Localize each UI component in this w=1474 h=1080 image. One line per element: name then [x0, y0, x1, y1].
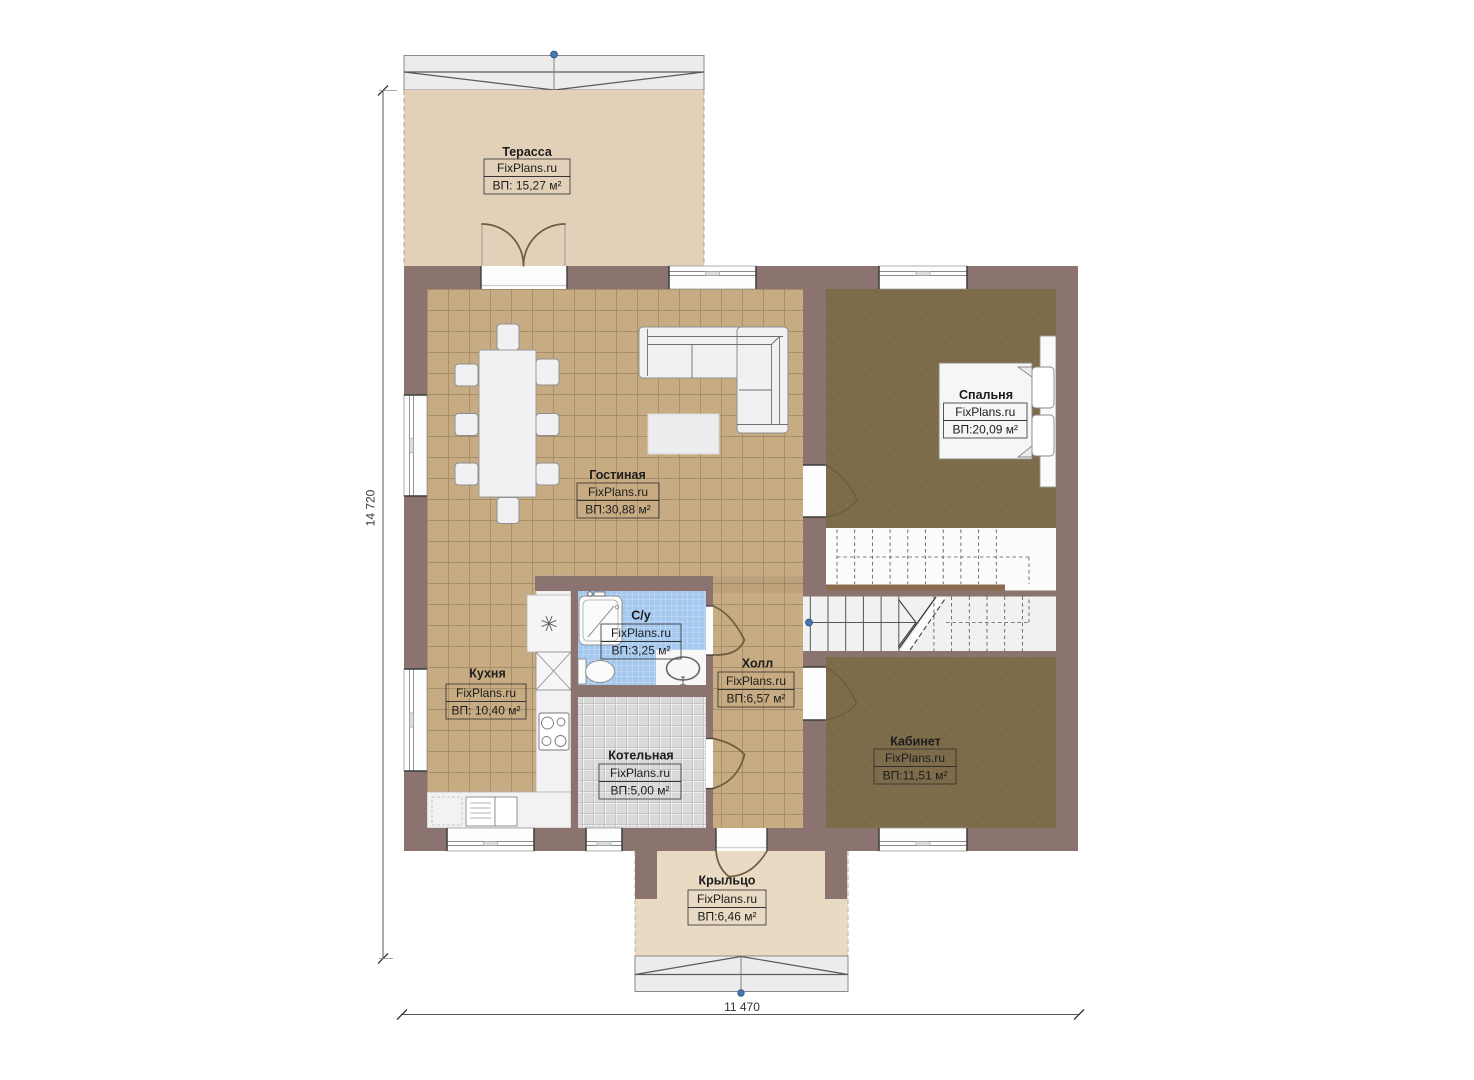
svg-text:Гостиная: Гостиная: [589, 468, 646, 482]
svg-text:ВП: 15,27 м²: ВП: 15,27 м²: [493, 179, 562, 193]
svg-text:FixPlans.ru: FixPlans.ru: [726, 674, 786, 688]
svg-text:11 470: 11 470: [724, 1000, 760, 1014]
svg-text:ВП:5,00 м²: ВП:5,00 м²: [611, 784, 670, 798]
svg-text:FixPlans.ru: FixPlans.ru: [610, 766, 670, 780]
svg-text:FixPlans.ru: FixPlans.ru: [456, 686, 516, 700]
svg-text:ВП:6,57 м²: ВП:6,57 м²: [727, 692, 786, 706]
svg-text:14 720: 14 720: [364, 489, 378, 526]
svg-text:Котельная: Котельная: [608, 749, 673, 763]
svg-text:ВП: 10,40 м²: ВП: 10,40 м²: [452, 704, 521, 718]
svg-text:FixPlans.ru: FixPlans.ru: [697, 892, 757, 906]
svg-text:ВП:20,09 м²: ВП:20,09 м²: [952, 423, 1018, 437]
svg-text:ВП:6,46 м²: ВП:6,46 м²: [698, 910, 757, 924]
svg-text:FixPlans.ru: FixPlans.ru: [885, 751, 945, 765]
svg-text:С/у: С/у: [631, 609, 651, 623]
svg-text:FixPlans.ru: FixPlans.ru: [955, 405, 1015, 419]
svg-text:ВП:3,25 м²: ВП:3,25 м²: [612, 644, 671, 658]
svg-text:ВП:30,88 м²: ВП:30,88 м²: [585, 503, 651, 517]
svg-text:Кухня: Кухня: [469, 667, 506, 681]
svg-text:FixPlans.ru: FixPlans.ru: [611, 626, 671, 640]
svg-text:Крыльцо: Крыльцо: [699, 874, 756, 888]
svg-text:Терасса: Терасса: [502, 145, 553, 159]
svg-text:Кабинет: Кабинет: [890, 735, 941, 749]
svg-text:Холл: Холл: [742, 657, 773, 671]
svg-text:Спальня: Спальня: [959, 388, 1013, 402]
svg-text:FixPlans.ru: FixPlans.ru: [497, 161, 557, 175]
svg-text:ВП:11,51 м²: ВП:11,51 м²: [883, 769, 948, 783]
svg-text:FixPlans.ru: FixPlans.ru: [588, 485, 648, 499]
